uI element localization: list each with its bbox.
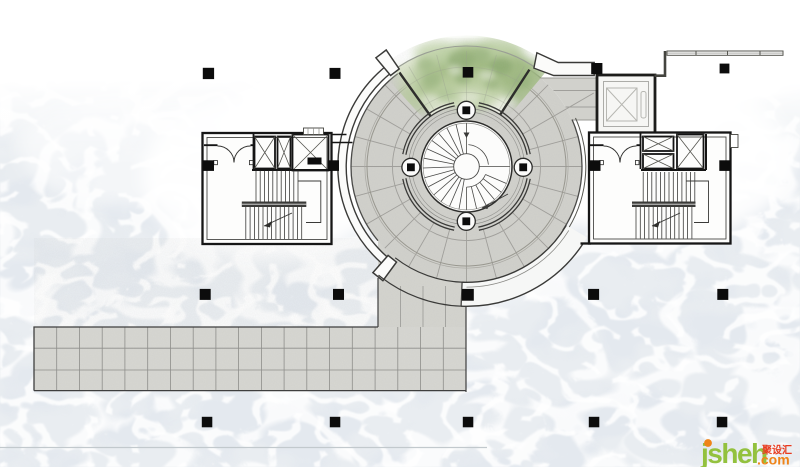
svg-text:聚设汇: 聚设汇 — [761, 444, 792, 457]
